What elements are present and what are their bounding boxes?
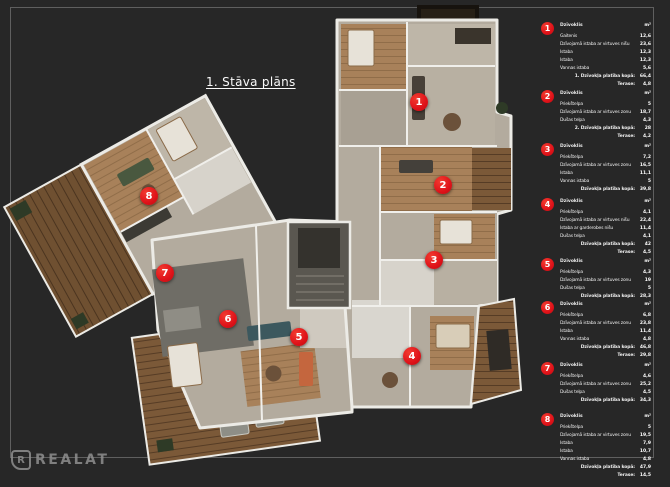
right-block — [337, 20, 521, 407]
room-area-value: 23,6 — [639, 40, 651, 48]
total-label: 2. Dzīvokļa platība kopā: — [575, 124, 635, 132]
room-label: Dzīvojamā istaba ar virtuves zonu — [560, 319, 639, 327]
room-label: Priekštelpa — [560, 423, 639, 431]
plan-marker-5: 5 — [290, 328, 308, 346]
total-area-value: 28,3 — [639, 292, 651, 300]
room-row: Vannas istaba4,8 — [560, 455, 651, 463]
page-title: 1. Stāva plāns — [206, 75, 296, 89]
unit-label: m² — [639, 257, 651, 265]
unit-label: m² — [639, 21, 651, 29]
legend-rows: Dzīvoklism²Gaitenis12,6Dzīvojamā istaba … — [560, 21, 651, 88]
room-label: Priekštelpa — [560, 372, 639, 380]
total-row: 1. Dzīvokļa platība kopā:66,4 — [560, 72, 651, 80]
legend-rows: Dzīvoklism²Priekštelpa7,2Dzīvojamā istab… — [560, 142, 651, 193]
apartment-header-label: Dzīvoklis — [560, 300, 639, 308]
room-row: Dzīvojamā istaba ar virtuves nišu23,6 — [560, 40, 651, 48]
room-label: Dušas telpa — [560, 232, 639, 240]
room-area-value: 5,6 — [639, 64, 651, 72]
apartment-header-label: Dzīvoklis — [560, 142, 639, 150]
room-row: Dzīvojamā istaba ar virtuves zonu16,5 — [560, 161, 651, 169]
room-label: Istaba — [560, 447, 639, 455]
total-row: Dzīvokļa platība kopā:46,8 — [560, 343, 651, 351]
room-label: Priekštelpa — [560, 153, 639, 161]
room-row: Istaba10,7 — [560, 447, 651, 455]
unit-label: m² — [639, 361, 651, 369]
apartment-number-badge: 2 — [541, 90, 554, 103]
terrace-label: Terase: — [617, 248, 635, 256]
apartment-number-badge: 7 — [541, 362, 554, 375]
legend-header-row: Dzīvoklism² — [560, 197, 651, 205]
realat-logo-icon: R — [11, 450, 31, 470]
total-row: Dzīvokļa platība kopā:47,9 — [560, 463, 651, 471]
legend-header-row: Dzīvoklism² — [560, 412, 651, 420]
room-row: Priekštelpa6,8 — [560, 311, 651, 319]
legend-header-row: Dzīvoklism² — [560, 361, 651, 369]
total-row: Dzīvokļa platība kopā:39,8 — [560, 185, 651, 193]
room-row: Vannas istaba5,6 — [560, 64, 651, 72]
room-area-value: 19,5 — [639, 431, 651, 439]
terrace-row: Terase:14,5 — [560, 471, 651, 479]
room-label: Dzīvojamā istaba ar virtuves zonu — [560, 276, 639, 284]
room-area-value: 5 — [639, 423, 651, 431]
terrace-area-value: 4,2 — [639, 132, 651, 140]
room-row: Dzīvojamā istaba ar virtuves zonu25,2 — [560, 380, 651, 388]
total-row: Dzīvokļa platība kopā:42 — [560, 240, 651, 248]
room-area-value: 19 — [639, 276, 651, 284]
apartment-header-label: Dzīvoklis — [560, 412, 639, 420]
room-row: Priekštelpa4,1 — [560, 208, 651, 216]
floor-plan-page: 1. Stāva plāns 1 2 3 4 5 6 7 8 1Dzīvokli… — [0, 0, 670, 487]
room-row: Priekštelpa7,2 — [560, 153, 651, 161]
plan-marker-3: 3 — [425, 251, 443, 269]
room-area-value: 10,7 — [639, 447, 651, 455]
room-area-value: 5 — [639, 284, 651, 292]
room-label: Istaba — [560, 56, 639, 64]
legend-header-row: Dzīvoklism² — [560, 21, 651, 29]
room-label: Priekštelpa — [560, 208, 639, 216]
room-area-value: 11,1 — [639, 169, 651, 177]
room-label: Priekštelpa — [560, 311, 639, 319]
terrace-area-value: 4,8 — [639, 80, 651, 88]
room-area-value: 4,8 — [639, 455, 651, 463]
room-area-value: 12,6 — [639, 32, 651, 40]
room-area-value: 4,1 — [639, 208, 651, 216]
room-row: Dzīvojamā istaba ar virtuves zonu19 — [560, 276, 651, 284]
room-area-value: 11,4 — [639, 327, 651, 335]
terrace-row: Terase:29,8 — [560, 351, 651, 359]
terrace-label: Terase: — [617, 351, 635, 359]
room-label: Dzīvojamā istaba ar virtuves zonu — [560, 431, 639, 439]
apartment-header-label: Dzīvoklis — [560, 197, 639, 205]
room-label: Dzīvojamā istaba ar virtuves zonu — [560, 380, 639, 388]
apartment-number-badge: 4 — [541, 198, 554, 211]
total-area-value: 66,4 — [639, 72, 651, 80]
legend-rows: Dzīvoklism²Priekštelpa4,3Dzīvojamā istab… — [560, 257, 651, 300]
room-area-value: 4,1 — [639, 232, 651, 240]
room-row: Priekštelpa5 — [560, 100, 651, 108]
plan-marker-2: 2 — [434, 176, 452, 194]
room-row: Vannas istaba4,8 — [560, 335, 651, 343]
room-row: Dušas telpa5 — [560, 284, 651, 292]
room-area-value: 4,3 — [639, 116, 651, 124]
legend-header-row: Dzīvoklism² — [560, 300, 651, 308]
terrace-label: Terase: — [617, 132, 635, 140]
room-area-value: 4,3 — [639, 268, 651, 276]
terrace-row: Terase:4,2 — [560, 132, 651, 140]
room-row: Istaba11,1 — [560, 169, 651, 177]
apartment-header-label: Dzīvoklis — [560, 21, 639, 29]
apartment-header-label: Dzīvoklis — [560, 257, 639, 265]
apartment-number-badge: 1 — [541, 22, 554, 35]
room-label: Gaitenis — [560, 32, 639, 40]
total-label: Dzīvokļa platība kopā: — [581, 185, 635, 193]
legend-header-row: Dzīvoklism² — [560, 142, 651, 150]
stair-core — [288, 222, 350, 308]
room-label: Istaba ar garderobes nišu — [560, 224, 639, 232]
total-label: Dzīvokļa platība kopā: — [581, 240, 635, 248]
room-row: Vannas istaba5 — [560, 177, 651, 185]
legend-header-row: Dzīvoklism² — [560, 89, 651, 97]
room-label: Priekštelpa — [560, 268, 639, 276]
total-area-value: 46,8 — [639, 343, 651, 351]
terrace-row: Terase:4,8 — [560, 80, 651, 88]
total-label: Dzīvokļa platība kopā: — [581, 463, 635, 471]
room-row: Priekštelpa4,3 — [560, 268, 651, 276]
room-label: Vannas istaba — [560, 64, 639, 72]
total-area-value: 47,9 — [639, 463, 651, 471]
unit-label: m² — [639, 197, 651, 205]
room-area-value: 5 — [639, 177, 651, 185]
total-row: 2. Dzīvokļa platība kopā:28 — [560, 124, 651, 132]
room-label: Istaba — [560, 327, 639, 335]
terrace-label: Terase: — [617, 471, 635, 479]
room-label: Dušas telpa — [560, 284, 639, 292]
unit-label: m² — [639, 142, 651, 150]
room-row: Istaba12,3 — [560, 56, 651, 64]
legend-header-row: Dzīvoklism² — [560, 257, 651, 265]
total-row: Dzīvokļa platība kopā:28,3 — [560, 292, 651, 300]
room-row: Istaba12,3 — [560, 48, 651, 56]
unit-label: m² — [639, 300, 651, 308]
room-label: Dušas telpa — [560, 116, 639, 124]
legend-rows: Dzīvoklism²Priekštelpa4,1Dzīvojamā istab… — [560, 197, 651, 256]
room-row: Dzīvojamā istaba ar virtuves zonu18,7 — [560, 108, 651, 116]
plan-marker-1: 1 — [410, 93, 428, 111]
terrace-area-value: 4,5 — [639, 248, 651, 256]
room-row: Dzīvojamā istaba ar virtuves nišu22,4 — [560, 216, 651, 224]
terrace-label: Terase: — [617, 80, 635, 88]
room-label: Vannas istaba — [560, 177, 639, 185]
room-row: Priekštelpa5 — [560, 423, 651, 431]
room-label: Vannas istaba — [560, 455, 639, 463]
apartment-number-badge: 3 — [541, 143, 554, 156]
apartment-number-badge: 5 — [541, 258, 554, 271]
total-area-value: 28 — [639, 124, 651, 132]
room-area-value: 4,6 — [639, 372, 651, 380]
terrace-area-value: 29,8 — [639, 351, 651, 359]
apartment-number-badge: 8 — [541, 413, 554, 426]
room-row: Priekštelpa4,6 — [560, 372, 651, 380]
total-area-value: 42 — [639, 240, 651, 248]
realat-logo-text: REALAT — [35, 452, 109, 468]
room-row: Istaba7,9 — [560, 439, 651, 447]
room-area-value: 11,4 — [639, 224, 651, 232]
room-label: Dzīvojamā istaba ar virtuves zonu — [560, 161, 639, 169]
room-row: Istaba11,4 — [560, 327, 651, 335]
plan-marker-4: 4 — [403, 347, 421, 365]
room-row: Dzīvojamā istaba ar virtuves zonu19,5 — [560, 431, 651, 439]
legend-rows: Dzīvoklism²Priekštelpa5Dzīvojamā istaba … — [560, 412, 651, 479]
plan-marker-8: 8 — [140, 187, 158, 205]
room-label: Vannas istaba — [560, 335, 639, 343]
room-row: Dušas telpa4,3 — [560, 116, 651, 124]
plan-marker-6: 6 — [219, 310, 237, 328]
room-area-value: 25,2 — [639, 380, 651, 388]
room-area-value: 18,7 — [639, 108, 651, 116]
room-area-value: 12,3 — [639, 48, 651, 56]
room-row: Dzīvojamā istaba ar virtuves zonu23,8 — [560, 319, 651, 327]
room-label: Istaba — [560, 48, 639, 56]
total-label: Dzīvokļa platība kopā: — [581, 292, 635, 300]
room-row: Dušas telpa4,5 — [560, 388, 651, 396]
total-label: Dzīvokļa platība kopā: — [581, 343, 635, 351]
room-label: Dzīvojamā istaba ar virtuves nišu — [560, 40, 639, 48]
unit-label: m² — [639, 89, 651, 97]
plan-marker-7: 7 — [156, 264, 174, 282]
total-area-value: 39,8 — [639, 185, 651, 193]
total-label: Dzīvokļa platība kopā: — [581, 396, 635, 404]
room-label: Istaba — [560, 439, 639, 447]
unit-label: m² — [639, 412, 651, 420]
room-label: Istaba — [560, 169, 639, 177]
legend-rows: Dzīvoklism²Priekštelpa5Dzīvojamā istaba … — [560, 89, 651, 140]
total-row: Dzīvokļa platība kopā:34,3 — [560, 396, 651, 404]
terrace-row: Terase:4,5 — [560, 248, 651, 256]
room-area-value: 16,5 — [639, 161, 651, 169]
room-area-value: 5 — [639, 100, 651, 108]
room-label: Dzīvojamā istaba ar virtuves zonu — [560, 108, 639, 116]
room-row: Dušas telpa4,1 — [560, 232, 651, 240]
room-area-value: 12,3 — [639, 56, 651, 64]
terrace-area-value: 14,5 — [639, 471, 651, 479]
apartment-number-badge: 6 — [541, 301, 554, 314]
apartment-header-label: Dzīvoklis — [560, 361, 639, 369]
room-row: Gaitenis12,6 — [560, 32, 651, 40]
room-row: Istaba ar garderobes nišu11,4 — [560, 224, 651, 232]
room-label: Priekštelpa — [560, 100, 639, 108]
room-area-value: 22,4 — [639, 216, 651, 224]
watermark: R REALAT — [11, 450, 109, 470]
room-label: Dušas telpa — [560, 388, 639, 396]
legend-rows: Dzīvoklism²Priekštelpa4,6Dzīvojamā istab… — [560, 361, 651, 404]
room-area-value: 6,8 — [639, 311, 651, 319]
total-label: 1. Dzīvokļa platība kopā: — [575, 72, 635, 80]
room-area-value: 4,8 — [639, 335, 651, 343]
apartment-header-label: Dzīvoklis — [560, 89, 639, 97]
total-area-value: 34,3 — [639, 396, 651, 404]
room-label: Dzīvojamā istaba ar virtuves nišu — [560, 216, 639, 224]
room-area-value: 4,5 — [639, 388, 651, 396]
room-area-value: 7,9 — [639, 439, 651, 447]
legend-rows: Dzīvoklism²Priekštelpa6,8Dzīvojamā istab… — [560, 300, 651, 359]
room-area-value: 7,2 — [639, 153, 651, 161]
room-area-value: 23,8 — [639, 319, 651, 327]
